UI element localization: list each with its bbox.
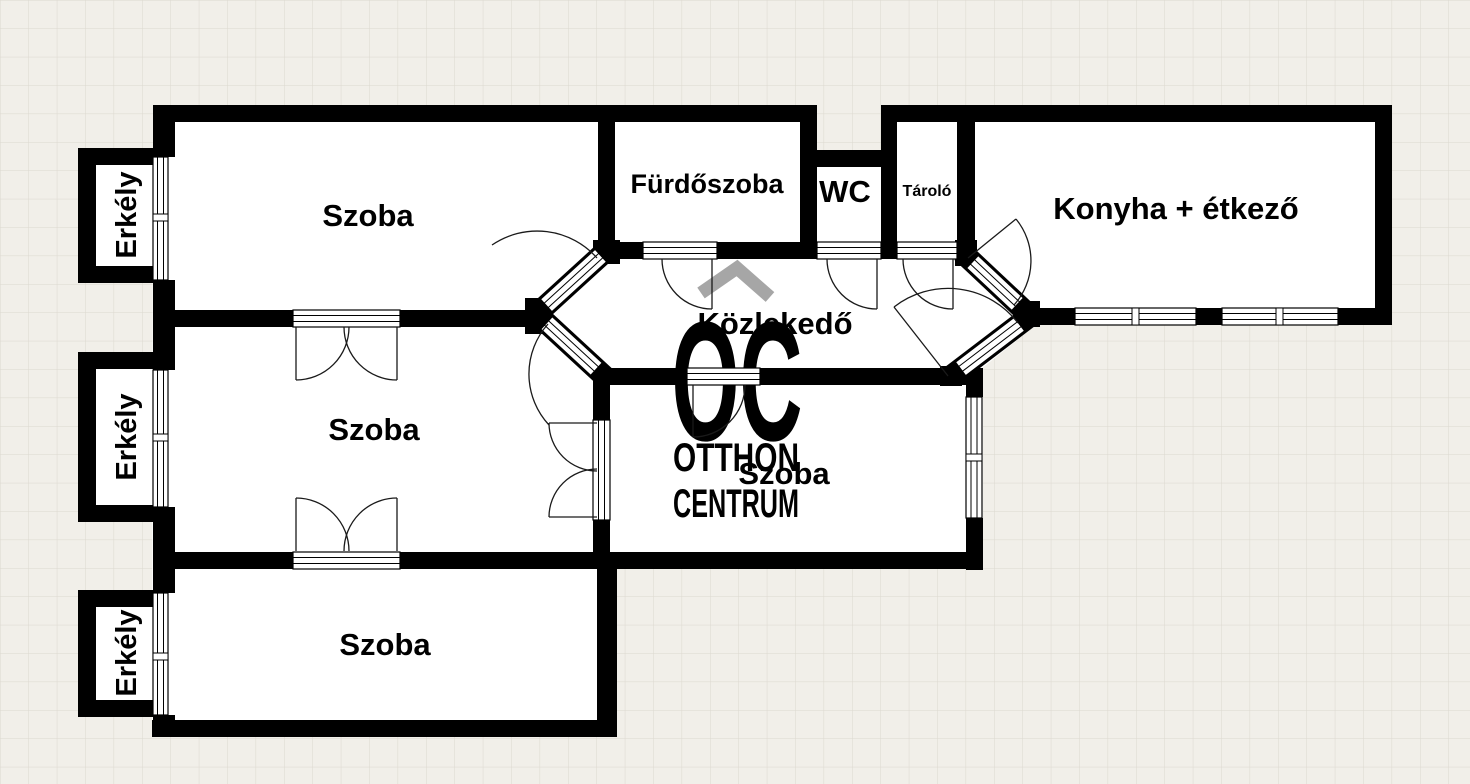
- window-balcony-top: [153, 157, 168, 280]
- wall-balcony-bottom-2: [78, 505, 155, 522]
- threshold-roomA-roomB: [293, 310, 400, 327]
- threshold-roomB-roomD: [593, 420, 610, 520]
- wall-left-a: [153, 105, 175, 157]
- wall-kitchen-right: [1375, 105, 1392, 325]
- threshold-wc: [817, 242, 881, 259]
- room-label-kitchen: Konyha + étkező: [1053, 191, 1299, 226]
- threshold-bathroom: [643, 242, 717, 259]
- floorplan-page: OC OTTHON CENTRUM: [0, 0, 1470, 784]
- wall-corridor-top-c: [881, 242, 897, 259]
- room-label-hallway: Közlekedő: [697, 306, 852, 341]
- wall-left-c: [153, 507, 175, 593]
- wall-roomB-right-a: [593, 380, 610, 420]
- wall-top-left: [155, 105, 817, 122]
- window-kitchen-2: [1222, 308, 1338, 325]
- wall-BC-b: [400, 552, 617, 569]
- window-roomD-right: [966, 397, 982, 518]
- balcony-label-bottom: Erkély: [111, 609, 143, 696]
- threshold-hallway-roomD: [687, 368, 760, 385]
- room-label-wc: WC: [819, 174, 871, 209]
- room-label-storage: Tároló: [903, 183, 952, 200]
- wall-AB-a: [155, 310, 293, 327]
- room-label-bottom-left: Szoba: [339, 627, 431, 662]
- floorplan-canvas: OC OTTHON CENTRUM: [0, 0, 1470, 784]
- threshold-roomB-roomC: [293, 552, 400, 569]
- wall-BC-a: [155, 552, 293, 569]
- wall-balcony-bottom-1: [78, 266, 155, 283]
- wall-balcony-left-1: [78, 148, 96, 283]
- room-label-middle-right: Szoba: [738, 456, 830, 491]
- wall-roomC-bottom: [152, 720, 617, 737]
- wall-kitchen-bottom-c: [1338, 308, 1392, 325]
- wall-balcony-bottom-3: [78, 700, 155, 717]
- balcony-label-middle: Erkély: [111, 393, 143, 480]
- wall-roomA-right: [598, 105, 615, 252]
- threshold-storage: [897, 242, 957, 259]
- wall-balcony-left-3: [78, 590, 96, 717]
- wall-balcony-left-2: [78, 352, 96, 522]
- window-balcony-middle: [153, 370, 168, 507]
- balcony-label-top: Erkély: [111, 171, 143, 258]
- room-label-bathroom: Fürdőszoba: [631, 169, 785, 199]
- wall-corridor-top-b: [717, 242, 817, 259]
- window-kitchen-1: [1075, 308, 1196, 325]
- wall-kitchen-bottom-b: [1196, 308, 1222, 325]
- room-label-middle-left: Szoba: [328, 412, 420, 447]
- wall-roomC-right: [597, 568, 617, 720]
- wall-roomD-bottom: [593, 552, 983, 569]
- wall-storage-kitchen-divider: [957, 105, 975, 256]
- window-balcony-bottom: [153, 593, 168, 715]
- wall-wc-storage-divider: [881, 105, 897, 259]
- wall-roomD-right-b: [966, 518, 983, 570]
- room-label-top-left: Szoba: [322, 198, 414, 233]
- wall-bathroom-right: [800, 105, 817, 259]
